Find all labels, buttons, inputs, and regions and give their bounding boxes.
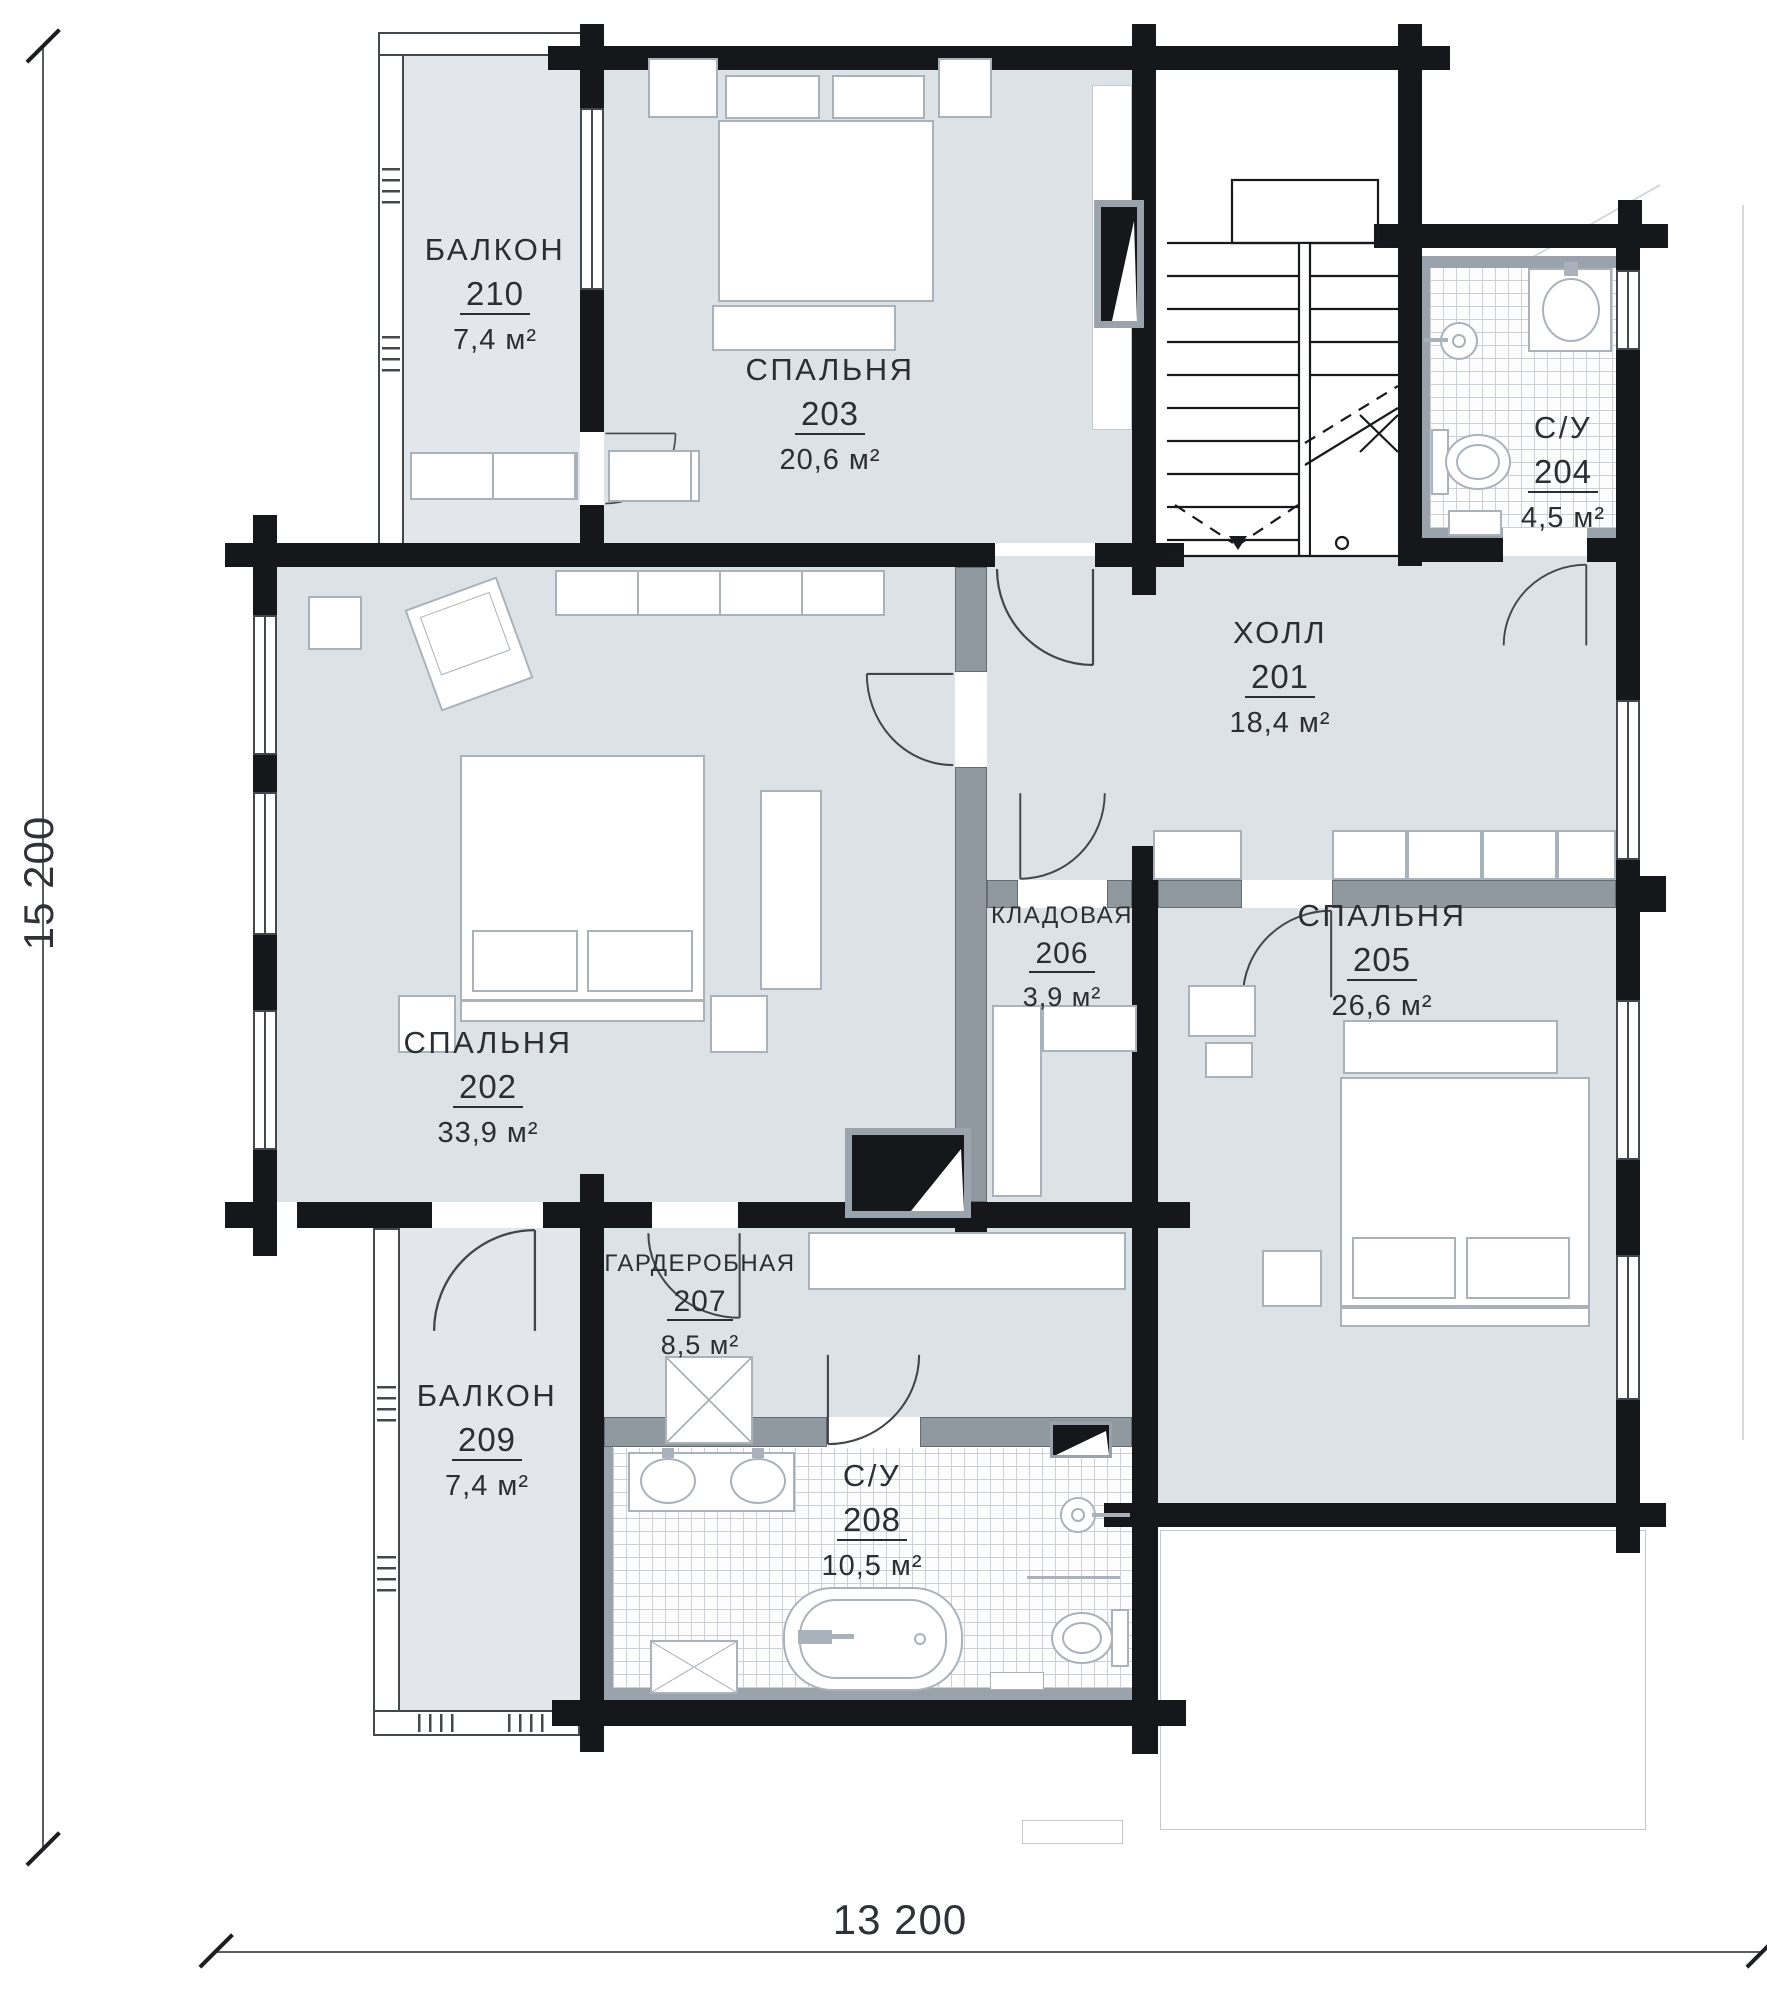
room-area: 8,5 м² [661,1330,740,1361]
log-end [1640,1503,1666,1527]
room-area: 7,4 м² [445,1470,529,1503]
shower-head-center [1452,334,1466,348]
level-mark-triangle [1056,1428,1109,1455]
log-end [1132,24,1156,46]
hall-closet [1557,830,1616,880]
room-number: 208 [837,1501,907,1541]
room-label-205: СПАЛЬНЯ 205 26,6 м² [1232,898,1532,1023]
hall-closet [1332,830,1407,880]
room-number: 207 [667,1285,732,1321]
room-name: БАЛКОН [417,1378,558,1414]
wall [253,1150,277,1228]
log-end [580,1726,604,1752]
partition-wall [955,567,987,672]
shower-arm [1424,338,1448,342]
pillow [472,930,578,992]
room-number: 210 [460,275,530,315]
vent-shaft-triangle [911,1146,964,1211]
room-label-202: СПАЛЬНЯ 202 33,9 м² [338,1025,638,1150]
log-end [580,24,604,46]
window [1616,1000,1640,1160]
balcony-209-railing-bottom [373,1710,580,1736]
side-table [308,596,362,650]
room-area: 4,5 м² [1521,502,1605,535]
room-label-201: ХОЛЛ 201 18,4 м² [1130,615,1430,740]
door-bathroom204-hall [1502,563,1588,647]
log-end [1398,186,1422,224]
nightstand [648,58,718,118]
log-end [552,1700,580,1726]
staircase [1167,70,1398,558]
wall [1143,1503,1640,1527]
armchair-seat [420,592,511,676]
room-area: 7,4 м² [453,324,537,357]
room-area: 20,6 м² [779,444,880,477]
log-end [1398,24,1422,46]
hall-closet [1482,830,1557,880]
pillow [587,930,693,992]
tap-icon [662,1448,674,1458]
shower-head-center [1071,1508,1085,1522]
nightstand [1262,1250,1322,1307]
nightstand [938,58,992,118]
log-end [225,1202,253,1228]
bed-bench [712,305,896,351]
roof-outline [1742,205,1744,1440]
room-number: 202 [453,1068,523,1108]
hall-closet [1407,830,1482,880]
wardrobe-cabinet [760,790,822,990]
pillow [725,75,820,119]
chimney-icon-triangle [1112,218,1137,321]
room-number: 205 [1347,941,1417,981]
railing-rungs [382,168,400,208]
wall [543,1202,652,1228]
bench [990,1672,1044,1690]
washing-machine [650,1640,738,1694]
wall-lining [1422,256,1430,538]
floor-plan: 15 200 13 200 [0,0,1767,2000]
faucet-spout [828,1634,854,1639]
wall [297,1202,432,1228]
sink-icon [640,1458,696,1504]
log-end [225,543,253,567]
room-area: 3,9 м² [1023,982,1102,1013]
room-area: 26,6 м² [1331,990,1432,1023]
room-area: 18,4 м² [1229,707,1330,740]
room-label-206: КЛАДОВАЯ 206 3,9 м² [950,902,1174,1013]
wall [253,935,277,1010]
log-end [1640,876,1666,912]
window [253,1010,277,1150]
log-end [1158,1700,1186,1726]
log-end [1132,1726,1158,1754]
dresser [555,570,885,616]
room-name: БАЛКОН [425,232,566,268]
log-end [1132,567,1156,595]
window [1616,270,1640,350]
wall [1398,224,1652,248]
chimney-icon [1094,200,1144,328]
wall [1095,543,1156,567]
log-end [1422,46,1450,70]
toilet-icon [1044,1608,1130,1668]
pillow [1352,1237,1456,1299]
room-name: ХОЛЛ [1233,615,1327,651]
door-hall-bedroom202 [865,672,955,767]
railing-rungs [508,1714,548,1732]
room-name: С/У [843,1458,901,1494]
log-end [1618,200,1642,248]
balcony-bench [410,452,578,500]
terrace-below-outline [1160,1530,1646,1830]
nightstand [710,995,768,1053]
wall [1587,538,1616,562]
shower-arm [1092,1513,1130,1517]
room-name: ГАРДЕРОБНАЯ [604,1250,795,1278]
towel-bar [1027,1576,1120,1579]
wall [1616,1160,1640,1255]
wall [245,543,995,567]
room-name: СПАЛЬНЯ [404,1025,573,1061]
window [253,615,277,755]
room-label-203: СПАЛЬНЯ 203 20,6 м² [680,352,980,477]
headboard [460,1000,705,1022]
wall [1398,46,1422,566]
railing-rungs [377,1556,396,1596]
wall [253,543,277,615]
room-name: СПАЛЬНЯ [746,352,915,388]
step-below-outline [1022,1820,1123,1844]
headboard [1340,1307,1590,1327]
hall-closet [1153,830,1242,880]
shelf [992,1005,1042,1197]
vent-shaft-icon [845,1128,971,1218]
log-end [1640,224,1668,248]
room-number: 203 [795,395,865,435]
window [1616,700,1640,860]
room-label-207: ГАРДЕРОБНАЯ 207 8,5 м² [548,1250,852,1361]
wall [253,755,277,792]
room-area: 10,5 м² [821,1550,922,1583]
dimension-label-bottom: 13 200 [750,1896,1050,1944]
bed [718,120,934,302]
log-end [1616,1527,1640,1553]
room-label-209: БАЛКОН 209 7,4 м² [337,1378,637,1503]
window [253,792,277,935]
faucet-icon [798,1630,832,1644]
chair [1205,1042,1253,1078]
wall [1422,538,1503,562]
room-area: 33,9 м² [437,1117,538,1150]
room-number: 206 [1029,937,1094,973]
pillow [832,75,925,119]
cabinet-x [665,1356,753,1444]
tap-icon [1564,262,1578,276]
room-name: СПАЛЬНЯ [1298,898,1467,934]
log-end [548,46,580,70]
door-wardrobe207-bathroom208 [826,1353,921,1446]
room-label-210: БАЛКОН 210 7,4 м² [345,232,645,357]
dimension-line-horizontal [215,1951,1763,1953]
railing-rungs [418,1714,458,1732]
pillow [1466,1237,1570,1299]
wall [590,1700,1158,1726]
room-name: КЛАДОВАЯ [991,902,1133,930]
dimension-label-left: 15 200 [15,783,61,983]
log-end [253,1228,277,1256]
wall [1616,248,1640,270]
door-bedroom203-hall [995,567,1095,667]
room-number: 204 [1528,453,1598,493]
log-end [580,1174,604,1202]
room-name: С/У [1534,410,1592,446]
sink-icon [1542,278,1600,342]
level-mark-icon [1050,1422,1112,1458]
room-label-204: С/У 204 4,5 м² [1448,410,1678,535]
door-bedroom202-balcony209 [432,1228,537,1333]
door-storage206 [1019,792,1107,881]
wall [1616,1400,1640,1503]
wall-lining [1422,256,1616,268]
wardrobe-shelf [808,1232,1126,1290]
tap-icon [752,1448,764,1458]
room-number: 209 [452,1421,522,1461]
room-number: 201 [1245,658,1315,698]
wall [580,46,604,108]
log-end [253,515,277,543]
window [1616,1255,1640,1400]
room-label-208: С/У 208 10,5 м² [722,1458,1022,1583]
desk [1343,1020,1558,1074]
